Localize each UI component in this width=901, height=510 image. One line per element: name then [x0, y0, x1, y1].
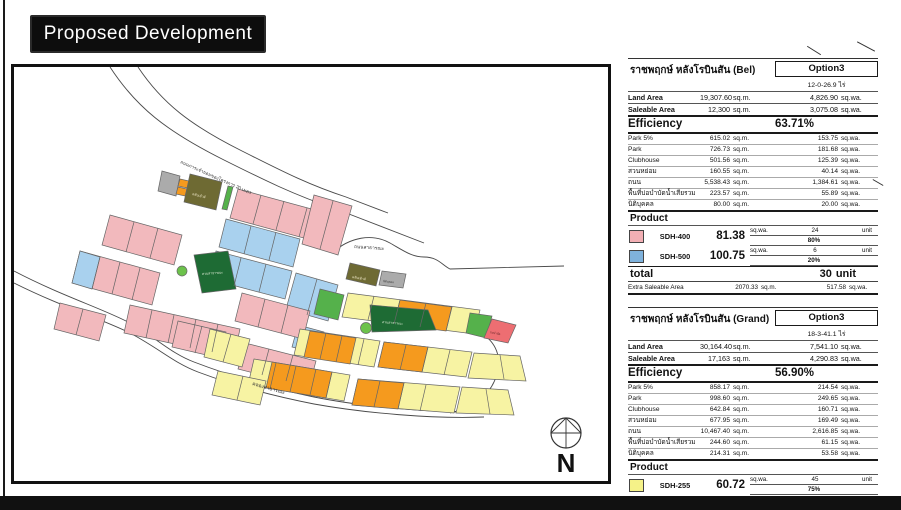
product-unit-label: unit: [862, 226, 872, 235]
efficiency-row: Efficiency 56.90%: [628, 364, 878, 383]
slide-left-border: [3, 0, 5, 510]
pen-mark-2: [857, 41, 875, 51]
sqm-unit: sq.m.: [730, 427, 756, 437]
table-row: Park998.60sq.m.249.65sq.wa.: [628, 394, 878, 405]
sqm-value: 160.55: [700, 167, 730, 177]
table-row: Clubhouse501.56sq.m.125.39sq.wa.: [628, 156, 878, 167]
sqm-unit: sq.m.: [730, 104, 756, 115]
efficiency-label: Efficiency: [628, 366, 775, 381]
table-grand: ราชพฤกษ์ หลังโรบินสัน (Grand) Option3 18…: [628, 307, 878, 510]
area-rai: 18-3-41.1 ไร่: [775, 326, 878, 340]
sqm-unit: sq.m.: [730, 189, 756, 199]
sqwa-value: 169.49: [756, 416, 838, 426]
sqm-value: 10,467.40: [700, 427, 730, 437]
product-size-unit: sq.wa.: [750, 246, 768, 255]
sqm-value: 214.31: [700, 449, 730, 459]
sqwa-value: 4,290.83: [756, 353, 838, 364]
compass-icon: N: [551, 418, 581, 478]
product-swatch: [629, 479, 644, 492]
product-size-unit: sq.wa.: [750, 226, 768, 235]
product-name: SDH-500: [646, 252, 704, 261]
sqm-unit: sq.m.: [730, 178, 756, 188]
product-row: SDH-40081.38sq.wa.24unit80%: [628, 226, 878, 246]
sqm-unit: sq.m.: [730, 156, 756, 166]
table-title: ราชพฤกษ์ หลังโรบินสัน (Bel): [628, 59, 775, 91]
sqwa-unit: sq.wa.: [838, 416, 878, 426]
grand-yellow-fan-b3: [456, 387, 514, 415]
sqm-value: 5,538.43: [700, 178, 730, 188]
bottom-bar: [0, 496, 901, 510]
sqwa-value: 249.65: [756, 394, 838, 404]
sqm-value: 17,163: [700, 353, 730, 364]
row-label: Saleable Area: [628, 104, 700, 115]
extra-sqm: 2070.33: [706, 282, 758, 293]
row-label: Saleable Area: [628, 353, 700, 364]
table-title: ราชพฤกษ์ หลังโรบินสัน (Grand): [628, 308, 775, 340]
sqwa-value: 7,541.10: [756, 341, 838, 352]
efficiency-value: 63.71%: [775, 117, 878, 132]
sqm-value: 80.00: [700, 200, 730, 210]
sqm-value: 223.57: [700, 189, 730, 199]
product-name: SDH-400: [646, 232, 704, 241]
product-detail: sq.wa.45unit75%: [750, 475, 878, 495]
sqwa-value: 3,075.08: [756, 104, 838, 115]
bel-green-sliver: [222, 186, 233, 210]
table-row: Park 5%615.02sq.m.153.75sq.wa.: [628, 134, 878, 145]
product-swatch: [629, 250, 644, 263]
table-bel-header: ราชพฤกษ์ หลังโรบินสัน (Bel) Option3 12-0…: [628, 58, 878, 91]
sqwa-value: 153.75: [756, 134, 838, 144]
product-size: 81.38: [704, 230, 750, 242]
table-row: Saleable Area17,163sq.m.4,290.83sq.wa.: [628, 352, 878, 364]
row-label: พื้นที่บ่อบำบัดน้ำเสียรวม: [628, 189, 700, 199]
sqwa-value: 55.89: [756, 189, 838, 199]
sqwa-unit: sq.wa.: [838, 189, 878, 199]
table-grand-header: ราชพฤกษ์ หลังโรบินสัน (Grand) Option3 18…: [628, 307, 878, 340]
table-row: นิติบุคคล214.31sq.m.53.58sq.wa.: [628, 449, 878, 459]
sqm-unit: sq.m.: [730, 394, 756, 404]
product-unit-label: unit: [862, 246, 872, 255]
sqwa-value: 20.00: [756, 200, 838, 210]
sqm-unit: sq.m.: [730, 449, 756, 459]
sqm-value: 12,300: [700, 104, 730, 115]
product-size-unit: sq.wa.: [750, 475, 768, 484]
sqwa-value: 214.54: [756, 383, 838, 393]
sqwa-value: 181.68: [756, 145, 838, 155]
table-row: Park 5%858.17sq.m.214.54sq.wa.: [628, 383, 878, 394]
sqm-unit: sq.m.: [730, 341, 756, 352]
sqwa-value: 125.39: [756, 156, 838, 166]
product-detail: sq.wa.24unit80%: [750, 226, 878, 246]
row-label: นิติบุคคล: [628, 200, 700, 210]
row-label: สวนหย่อม: [628, 416, 700, 426]
product-name: SDH-255: [646, 481, 704, 490]
detail-rows: Park 5%615.02sq.m.153.75sq.wa.Park726.73…: [628, 134, 878, 210]
total-row: total 30unit: [628, 266, 878, 281]
table-row: Clubhouse642.84sq.m.160.71sq.wa.: [628, 405, 878, 416]
sqm-unit: sq.m.: [730, 92, 756, 103]
sqm-unit: sq.m.: [730, 383, 756, 393]
table-row: Land Area19,307.60sq.m.4,826.90sq.wa.: [628, 91, 878, 103]
product-row: SDH-25560.72sq.wa.45unit75%: [628, 475, 878, 495]
sqwa-unit: sq.wa.: [838, 167, 878, 177]
sqwa-unit: sq.wa.: [838, 438, 878, 448]
sqwa-unit: sq.wa.: [838, 200, 878, 210]
total-unit: unit: [836, 268, 856, 280]
site-plan-svg: ถนนภาระจำยอมของโครงการ 20 เมตร ถนนสาธารณ…: [14, 67, 608, 481]
sqm-value: 726.73: [700, 145, 730, 155]
sqwa-value: 40.14: [756, 167, 838, 177]
area-rai: 12-0-26.9 ไร่: [775, 77, 878, 91]
sqm-value: 998.60: [700, 394, 730, 404]
table-row: สวนหย่อม677.95sq.m.169.49sq.wa.: [628, 416, 878, 427]
row-label: Park: [628, 145, 700, 155]
efficiency-row: Efficiency 63.71%: [628, 115, 878, 134]
product-units: 6: [813, 246, 816, 255]
efficiency-value: 56.90%: [775, 366, 878, 381]
area-rows: Land Area30,164.40sq.m.7,541.10sq.wa.Sal…: [628, 340, 878, 364]
row-label: พื้นที่บ่อบำบัดน้ำเสียรวม: [628, 438, 700, 448]
product-share: 20%: [750, 256, 878, 266]
product-size: 60.72: [704, 479, 750, 491]
tables-panel: ราชพฤกษ์ หลังโรบินสัน (Bel) Option3 12-0…: [628, 58, 878, 510]
table-row: สวนหย่อม160.55sq.m.40.14sq.wa.: [628, 167, 878, 178]
sqm-unit: sq.m.: [730, 134, 756, 144]
product-share: 75%: [750, 485, 878, 495]
sqwa-unit: sq.wa.: [838, 427, 878, 437]
sqm-value: 858.17: [700, 383, 730, 393]
public-road-label: ถนนสาธารณะ: [354, 244, 385, 252]
table-row: Land Area30,164.40sq.m.7,541.10sq.wa.: [628, 340, 878, 352]
product-detail: sq.wa.6unit20%: [750, 246, 878, 266]
efficiency-label: Efficiency: [628, 117, 775, 132]
row-label: ถนน: [628, 178, 700, 188]
sqm-unit: sq.m.: [730, 200, 756, 210]
table-row: พื้นที่บ่อบำบัดน้ำเสียรวม223.57sq.m.55.8…: [628, 189, 878, 200]
total-value: 30: [820, 268, 832, 280]
product-units: 45: [812, 475, 819, 484]
extra-label: Extra Saleable Area: [628, 282, 706, 293]
sqwa-unit: sq.wa.: [838, 405, 878, 415]
product-size: 100.75: [704, 250, 750, 262]
row-label: Land Area: [628, 92, 700, 103]
sqm-value: 19,307.60: [700, 92, 730, 103]
product-rows: SDH-40081.38sq.wa.24unit80%SDH-500100.75…: [628, 226, 878, 266]
sqm-value: 30,164.40: [700, 341, 730, 352]
sqwa-value: 2,616.85: [756, 427, 838, 437]
table-row: ถนน5,538.43sq.m.1,384.61sq.wa.: [628, 178, 878, 189]
sqwa-value: 160.71: [756, 405, 838, 415]
grand-clubhouse-block: [346, 263, 380, 286]
total-label: total: [630, 267, 653, 281]
row-label: Park 5%: [628, 383, 700, 393]
area-rows: Land Area19,307.60sq.m.4,826.90sq.wa.Sal…: [628, 91, 878, 115]
extra-sqwa-unit: sq.wa.: [846, 282, 878, 293]
sqm-unit: sq.m.: [730, 405, 756, 415]
sqwa-unit: sq.wa.: [838, 178, 878, 188]
grand-yellow-fan-m3: [468, 353, 526, 381]
sqwa-unit: sq.wa.: [838, 449, 878, 459]
row-label: ถนน: [628, 427, 700, 437]
sqm-value: 244.60: [700, 438, 730, 448]
grand-orange-b2: [352, 379, 404, 409]
public-road-line: [332, 238, 564, 269]
bel-pink-column-east: [302, 195, 352, 255]
row-label: สวนหย่อม: [628, 167, 700, 177]
pen-mark-1: [807, 46, 821, 55]
sqm-value: 501.56: [700, 156, 730, 166]
row-label: Clubhouse: [628, 405, 700, 415]
compass-n-label: N: [557, 448, 576, 478]
sqwa-value: 4,826.90: [756, 92, 838, 103]
sqwa-value: 61.15: [756, 438, 838, 448]
row-label: นิติบุคคล: [628, 449, 700, 459]
sqm-unit: sq.m.: [730, 167, 756, 177]
extra-saleable-row: Extra Saleable Area 2070.33 sq.m. 517.58…: [628, 281, 878, 295]
table-row: Saleable Area12,300sq.m.3,075.08sq.wa.: [628, 103, 878, 115]
sqwa-unit: sq.wa.: [838, 104, 878, 115]
sqwa-unit: sq.wa.: [838, 394, 878, 404]
product-section-label: Product: [628, 210, 878, 226]
table-row: พื้นที่บ่อบำบัดน้ำเสียรวม244.60sq.m.61.1…: [628, 438, 878, 449]
detail-rows: Park 5%858.17sq.m.214.54sq.wa.Park998.60…: [628, 383, 878, 459]
sqwa-unit: sq.wa.: [838, 134, 878, 144]
product-share: 80%: [750, 236, 878, 246]
row-label: Clubhouse: [628, 156, 700, 166]
sqm-unit: sq.m.: [730, 438, 756, 448]
product-swatch: [629, 230, 644, 243]
row-label: Park 5%: [628, 134, 700, 144]
bel-pink-row-a: [102, 215, 182, 265]
sqwa-value: 1,384.61: [756, 178, 838, 188]
sqm-unit: sq.m.: [730, 145, 756, 155]
option-badge: Option3: [775, 61, 878, 77]
table-row: ถนน10,467.40sq.m.2,616.85sq.wa.: [628, 427, 878, 438]
product-row: SDH-500100.75sq.wa.6unit20%: [628, 246, 878, 266]
page-title-text: Proposed Development: [44, 23, 253, 45]
bel-roundabout: [177, 266, 187, 276]
slide: Proposed Development: [0, 0, 901, 510]
extra-sqm-unit: sq.m.: [758, 282, 784, 293]
sqwa-unit: sq.wa.: [838, 92, 878, 103]
row-label: Land Area: [628, 341, 700, 352]
table-row: Park726.73sq.m.181.68sq.wa.: [628, 145, 878, 156]
grand-roundabout: [361, 323, 372, 334]
sqm-value: 642.84: [700, 405, 730, 415]
product-line-1: sq.wa.24unit: [750, 226, 878, 236]
sqwa-value: 53.58: [756, 449, 838, 459]
site-plan-map: ถนนภาระจำยอมของโครงการ 20 เมตร ถนนสาธารณ…: [11, 64, 611, 484]
product-units: 24: [812, 226, 819, 235]
sqm-unit: sq.m.: [730, 353, 756, 364]
sqwa-unit: sq.wa.: [838, 353, 878, 364]
product-line-1: sq.wa.6unit: [750, 246, 878, 256]
sqm-value: 615.02: [700, 134, 730, 144]
extra-sqwa: 517.58: [784, 282, 846, 293]
product-line-1: sq.wa.45unit: [750, 475, 878, 485]
table-bel: ราชพฤกษ์ หลังโรบินสัน (Bel) Option3 12-0…: [628, 58, 878, 295]
sqwa-unit: sq.wa.: [838, 383, 878, 393]
page-title: Proposed Development: [30, 15, 266, 53]
sqwa-unit: sq.wa.: [838, 341, 878, 352]
row-label: Park: [628, 394, 700, 404]
sqwa-unit: sq.wa.: [838, 156, 878, 166]
table-row: นิติบุคคล80.00sq.m.20.00sq.wa.: [628, 200, 878, 210]
sqm-unit: sq.m.: [730, 416, 756, 426]
sqm-value: 677.95: [700, 416, 730, 426]
option-badge: Option3: [775, 310, 878, 326]
product-unit-label: unit: [862, 475, 872, 484]
sqwa-unit: sq.wa.: [838, 145, 878, 155]
product-section-label: Product: [628, 459, 878, 475]
